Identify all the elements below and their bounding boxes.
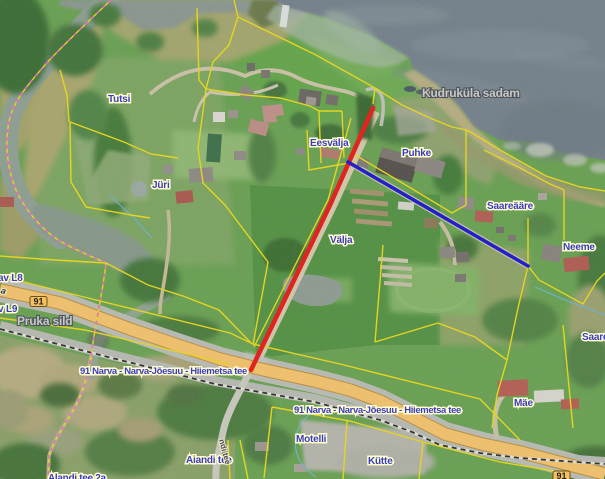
svg-text:Alandi tee 2a: Alandi tee 2a (48, 473, 107, 479)
svg-text:91: 91 (34, 297, 44, 307)
svg-text:Mäe: Mäe (514, 398, 533, 409)
svg-text:91 Narva - Narva-Jõesuu - Hiie: 91 Narva - Narva-Jõesuu - Hiiemetsa tee (294, 405, 461, 416)
svg-text:Eesvälja: Eesvälja (310, 138, 349, 149)
svg-text:91: 91 (557, 471, 567, 479)
svg-text:v L9: v L9 (0, 304, 18, 315)
svg-text:Kudruküla sadam: Kudruküla sadam (422, 86, 520, 100)
svg-text:Motelli: Motelli (296, 434, 327, 445)
svg-text:Pruka sild: Pruka sild (17, 314, 72, 328)
svg-text:Saare: Saare (582, 332, 605, 343)
svg-text:Tutsi: Tutsi (108, 94, 131, 105)
svg-text:Neeme: Neeme (563, 242, 595, 253)
svg-text:Kütte: Kütte (368, 456, 393, 467)
svg-text:Puhke: Puhke (402, 148, 432, 159)
svg-text:Välja: Välja (330, 235, 353, 246)
svg-text:Saareääre: Saareääre (487, 201, 534, 212)
svg-text:91 Narva - Narva-Jõesuu - Hiie: 91 Narva - Narva-Jõesuu - Hiiemetsa tee (80, 366, 247, 377)
svg-text:Jüri: Jüri (152, 180, 170, 191)
svg-text:av L8: av L8 (0, 273, 23, 284)
